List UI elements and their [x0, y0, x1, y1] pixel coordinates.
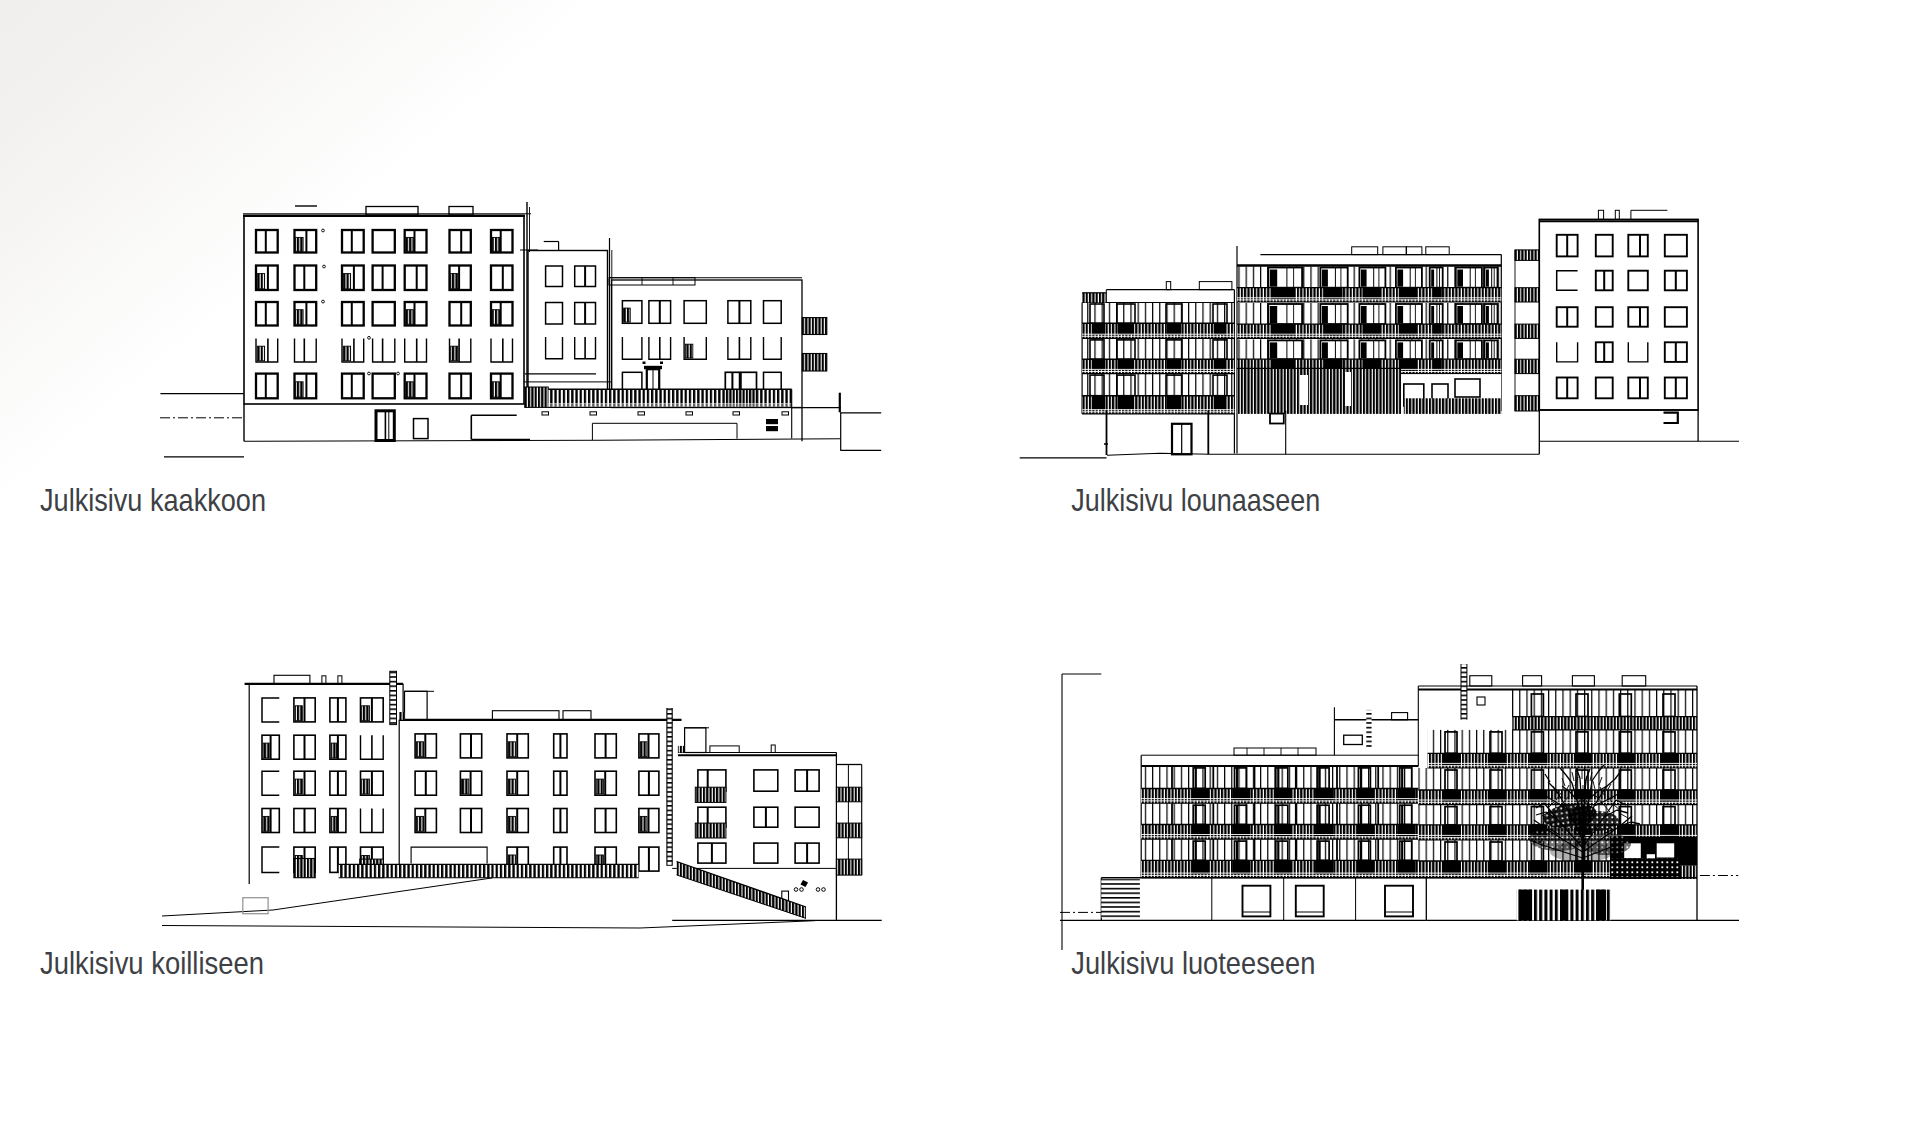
svg-text:Julkisivu kaakkoon: Julkisivu kaakkoon [40, 482, 266, 518]
svg-text:Julkisivu koilliseen: Julkisivu koilliseen [40, 945, 264, 981]
svg-text:Julkisivu lounaaseen: Julkisivu lounaaseen [1071, 482, 1320, 518]
svg-text:Julkisivu luoteeseen: Julkisivu luoteeseen [1071, 945, 1315, 981]
